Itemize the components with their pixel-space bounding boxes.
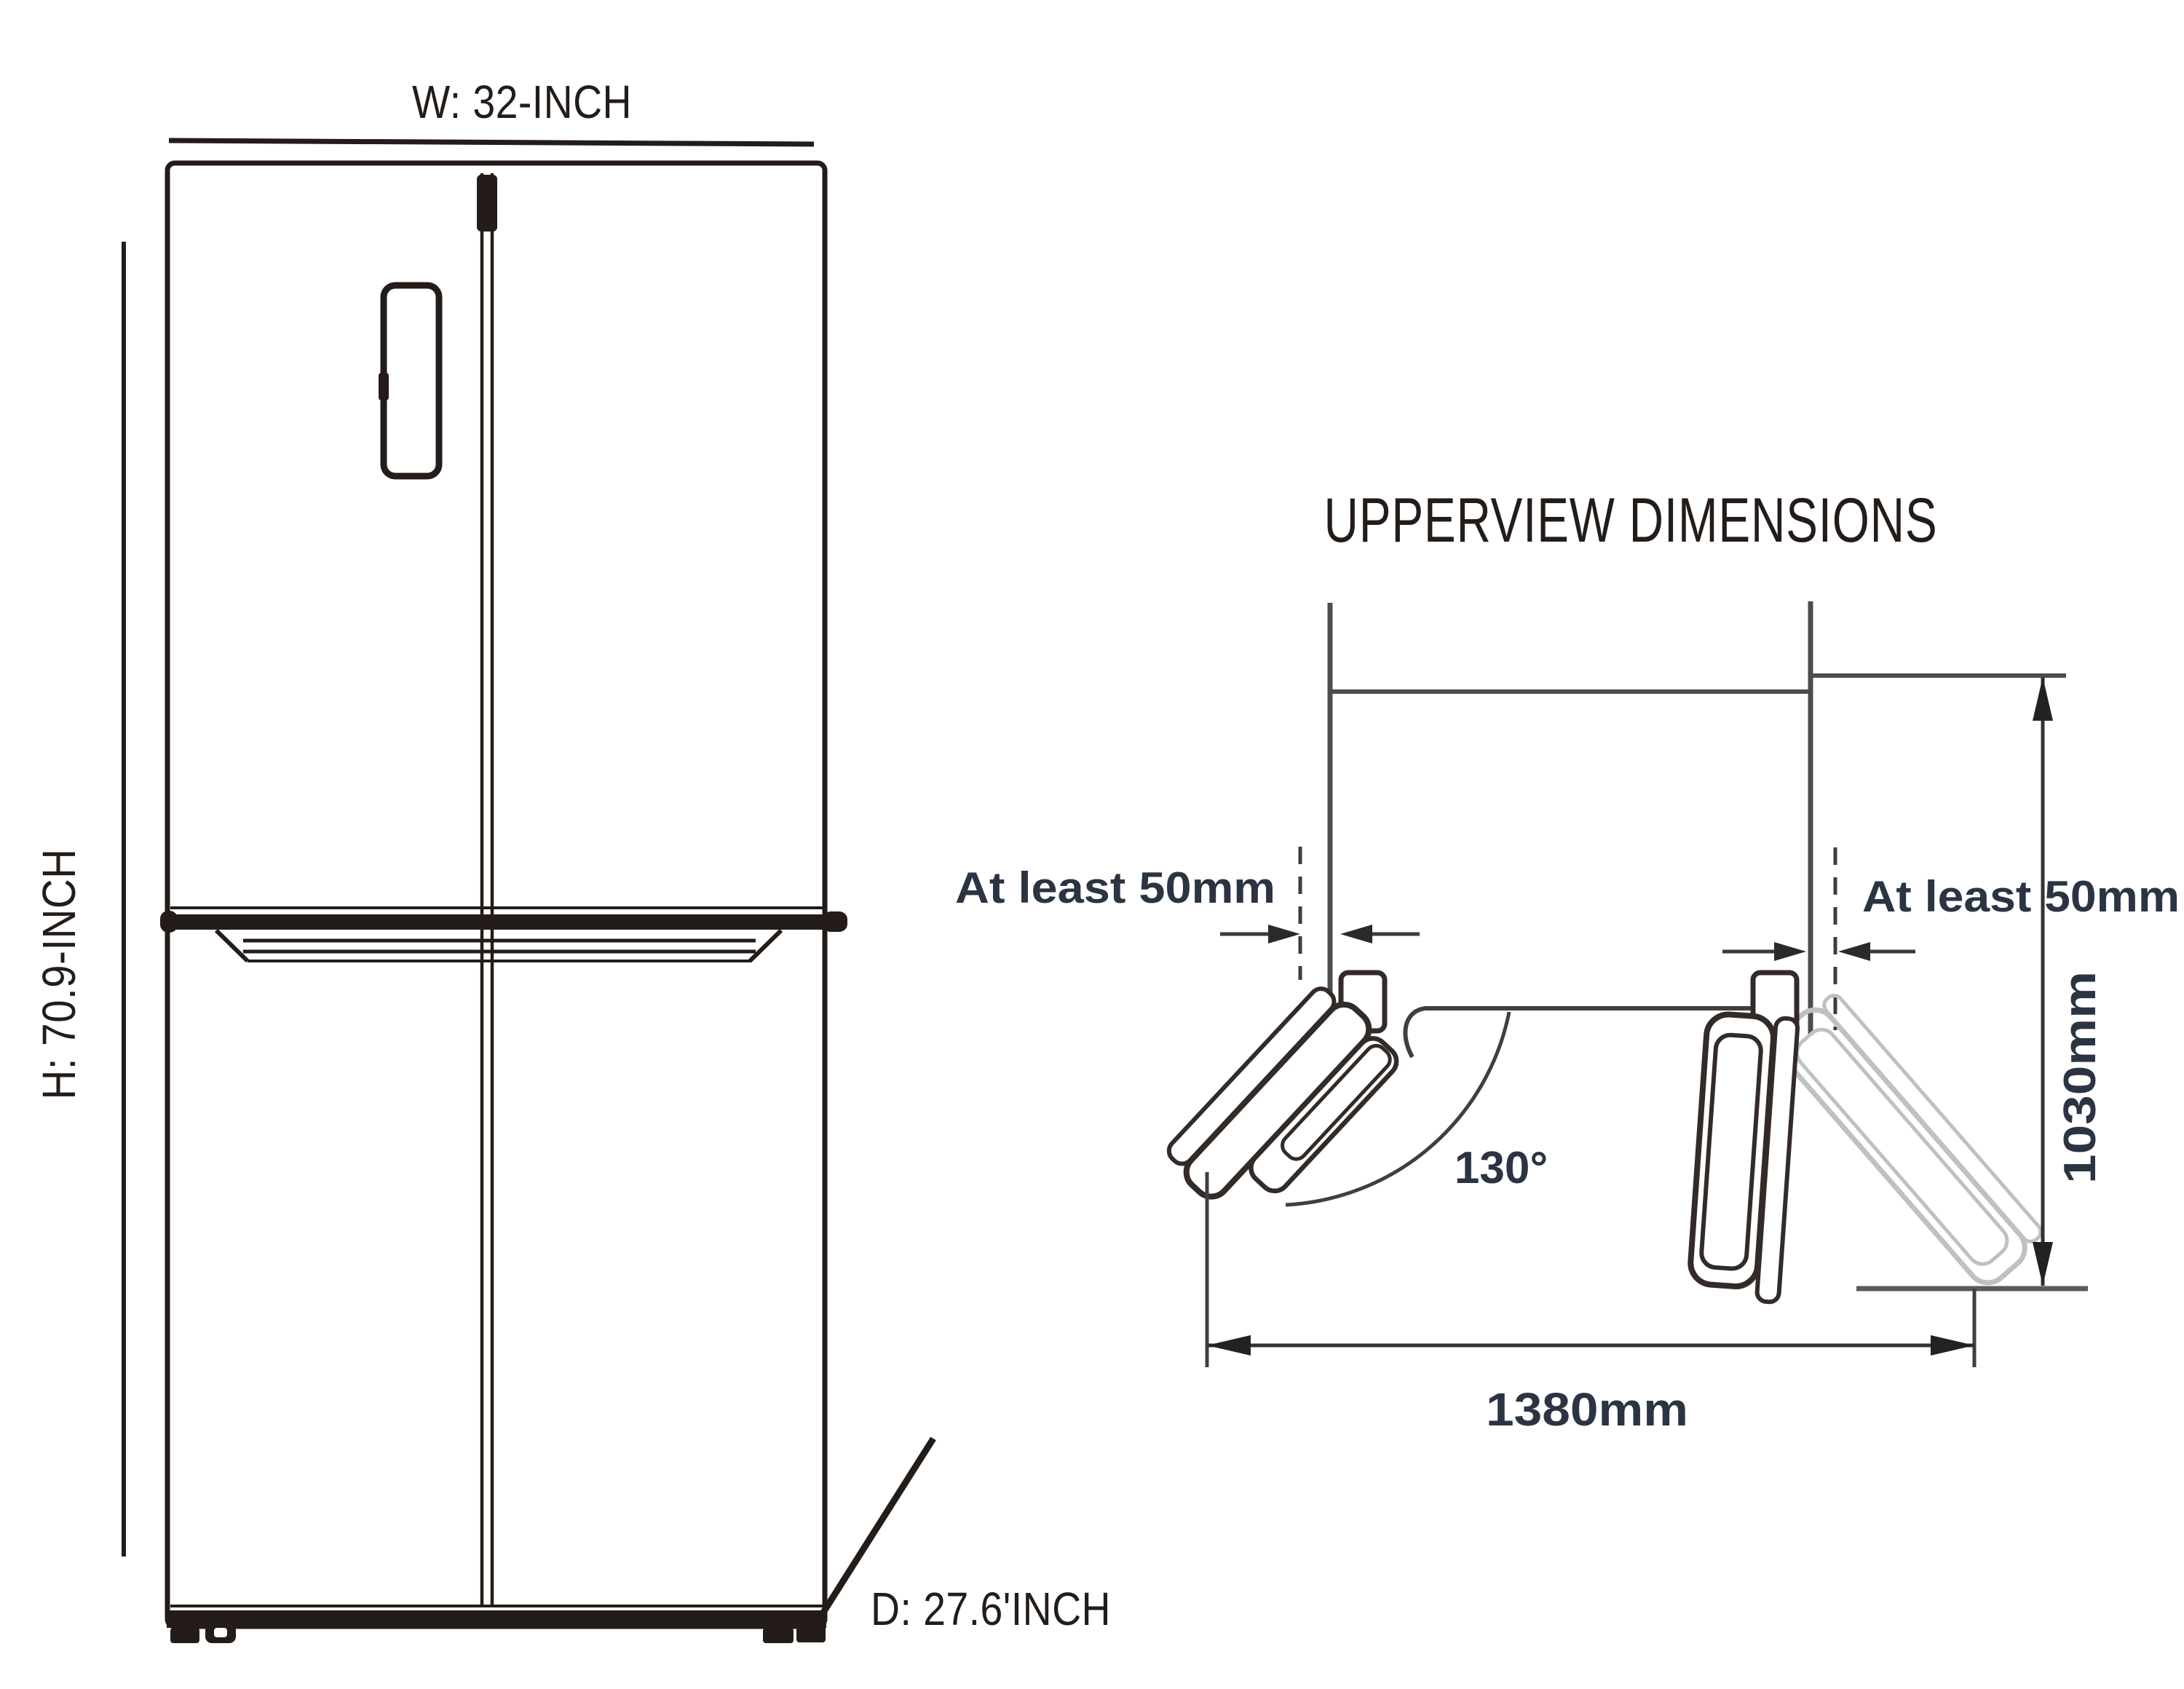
fridge-dimension-diagram: W: 32-INCH H: 70.9-INCH D <box>0 0 2184 1689</box>
left-clearance-arrows <box>1220 925 1420 944</box>
front-view: W: 32-INCH H: 70.9-INCH D <box>33 76 1111 1643</box>
width-dimension-label: W: 32-INCH <box>412 76 632 128</box>
control-panel <box>384 285 439 476</box>
foot-left <box>170 1628 199 1643</box>
depth-dimension-1030 <box>2033 677 2053 1286</box>
ghost-door-half-open <box>1770 989 2048 1291</box>
right-clearance-arrows <box>1722 942 1915 961</box>
foot-right-corner <box>796 1626 826 1642</box>
control-panel-notch <box>379 373 389 400</box>
width-dimension-line <box>169 141 814 144</box>
foot-right <box>763 1628 794 1643</box>
mid-handle-bar-left-cap <box>160 911 178 933</box>
right-door-open <box>1688 1013 1798 1302</box>
top-view: UPPERVIEW DIMENSIONS At least 50mm At le… <box>955 486 2180 1436</box>
foot-roller-slot <box>214 1628 227 1637</box>
mid-handle-bar-right-cap <box>823 911 847 932</box>
top-view-title: UPPERVIEW DIMENSIONS <box>1324 486 1938 555</box>
mid-handle-bar <box>170 914 826 930</box>
base-bar <box>167 1610 826 1628</box>
left-clearance-label: At least 50mm <box>955 863 1275 912</box>
right-clearance-label: At least 50mm <box>1862 872 2180 921</box>
width-dimension-label-1380: 1380mm <box>1486 1383 1688 1436</box>
depth-dimension-label: D: 27.6'INCH <box>871 1583 1111 1635</box>
height-dimension-label: H: 70.9-INCH <box>33 849 85 1100</box>
width-dimension-1380 <box>1207 1335 1974 1356</box>
door-divider-top-hinge <box>477 175 497 232</box>
depth-dimension-label-1030: 1030mm <box>2055 971 2105 1184</box>
swing-angle-label: 130° <box>1455 1143 1548 1193</box>
fridge-body <box>167 163 825 1626</box>
